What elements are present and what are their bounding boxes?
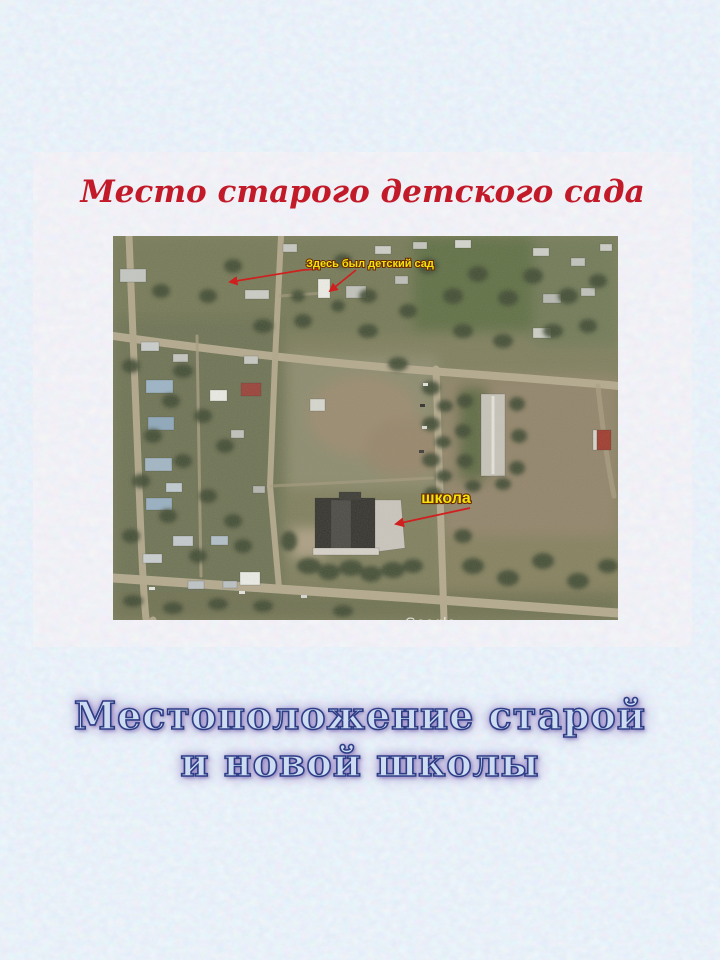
satellite-map-graphic: Здесь был детский сад школа Google — [113, 236, 618, 620]
slide-title: Место старого детского сада — [33, 172, 692, 212]
satellite-map: Здесь был детский сад школа Google — [113, 236, 618, 620]
caption-title: Местоположение старой и новой школы — [0, 692, 720, 786]
google-watermark: Google — [405, 614, 456, 620]
caption-line-1: Местоположение старой — [0, 692, 720, 739]
school-label: школа — [421, 490, 471, 507]
caption-line-2: и новой школы — [0, 739, 720, 786]
map-grain — [113, 236, 618, 620]
kindergarten-label: Здесь был детский сад — [306, 258, 434, 270]
